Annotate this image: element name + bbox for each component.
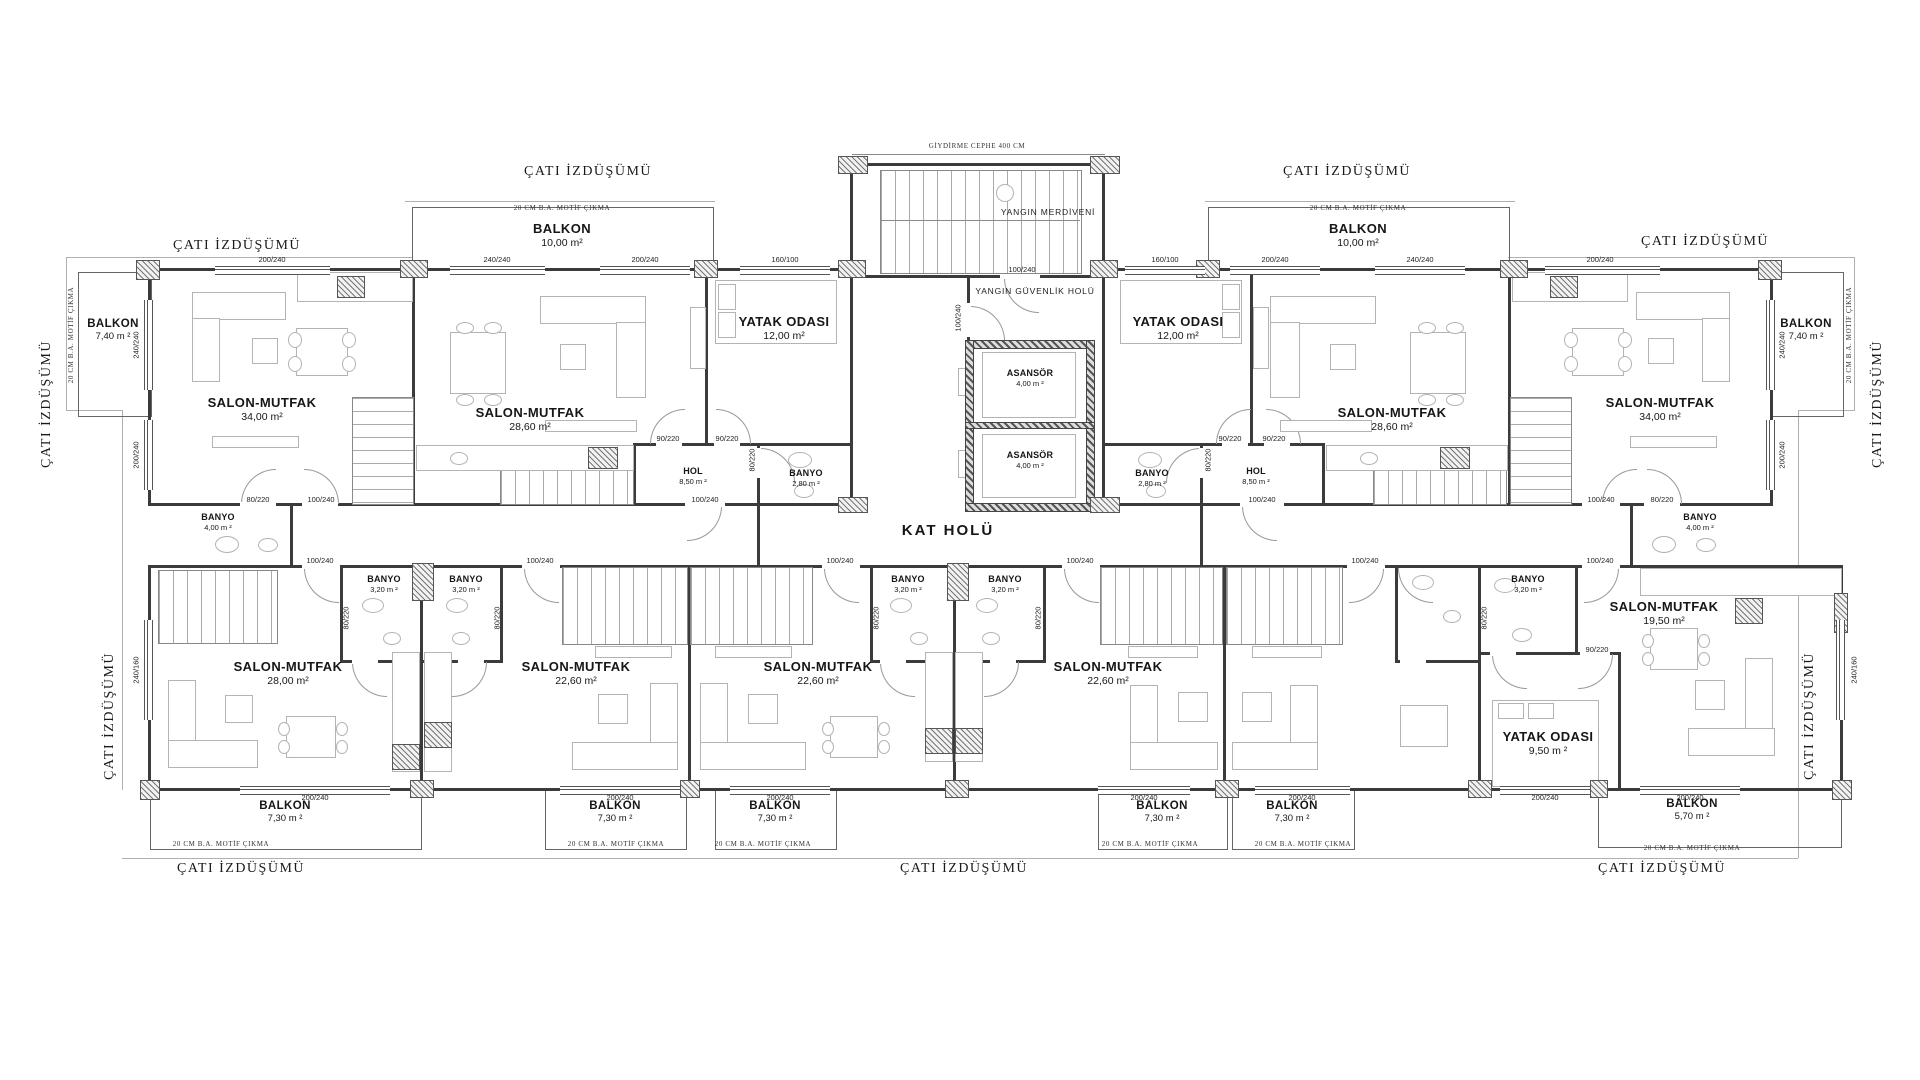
wall (850, 163, 1105, 166)
column (838, 497, 868, 513)
wall (1618, 652, 1621, 791)
window (600, 266, 690, 275)
sink (1443, 610, 1461, 623)
sink (982, 632, 1000, 645)
window (450, 266, 545, 275)
motif-note: 20 CM B.A. MOTİF ÇIKMA (1845, 287, 1853, 383)
wall (1575, 565, 1578, 655)
wardrobe (690, 307, 706, 369)
sofa (1636, 292, 1730, 320)
toilet (362, 598, 384, 613)
sink (383, 632, 401, 645)
door-dim: 100/240 (1066, 556, 1093, 565)
sofa (616, 322, 646, 398)
chair (878, 740, 890, 754)
sink (910, 632, 928, 645)
motif-note: 20 CM B.A. MOTİF ÇIKMA (67, 287, 75, 383)
motif-note: 20 CM B.A. MOTİF ÇIKMA (1644, 844, 1740, 852)
door-dim: 80/220 (1651, 495, 1674, 504)
door-dim: 80/220 (1480, 607, 1489, 630)
door-dim: 100/240 (1248, 495, 1275, 504)
column (1468, 780, 1492, 798)
roof-outline (1508, 257, 1854, 258)
chair (456, 394, 474, 406)
window-dim: 200/240 (1586, 255, 1613, 264)
sofa (192, 318, 220, 382)
chair (822, 740, 834, 754)
chair (1564, 356, 1578, 372)
room-label-hol: HOL8,50 m ² (1242, 466, 1270, 486)
chair (1698, 634, 1710, 648)
roof-projection-label: ÇATI İZDÜŞÜMÜ (1870, 340, 1886, 468)
stove (1440, 447, 1470, 469)
stair (1510, 397, 1572, 505)
door-opening (1400, 659, 1426, 664)
chair (336, 722, 348, 736)
door-opening (352, 659, 378, 664)
room-label-asansor: ASANSÖR4,00 m ² (1007, 368, 1053, 388)
roof-projection-label: ÇATI İZDÜŞÜMÜ (1641, 234, 1769, 250)
window-dim: 160/100 (771, 255, 798, 264)
roof-projection-label: ÇATI İZDÜŞÜMÜ (1283, 164, 1411, 180)
pillow (718, 284, 736, 310)
window-dim: 240/240 (483, 255, 510, 264)
room-label-salon-mutfak: SALON-MUTFAK28,00 m² (234, 660, 343, 688)
roof-projection-label: ÇATI İZDÜŞÜMÜ (900, 861, 1028, 877)
room-label-yatak-odasi: YATAK ODASI12,00 m² (739, 315, 830, 343)
column (945, 780, 969, 798)
roof-projection-label: ÇATI İZDÜŞÜMÜ (173, 238, 301, 254)
side-table (1178, 692, 1208, 722)
chair (342, 356, 356, 372)
window (215, 266, 330, 275)
fire-stair (880, 170, 1082, 274)
door-arc (824, 568, 859, 603)
column (1090, 260, 1118, 278)
motif-note: 20 CM B.A. MOTİF ÇIKMA (1255, 840, 1351, 848)
shaft-column (947, 563, 969, 601)
room-label-hol: HOL8,50 m ² (679, 466, 707, 486)
toilet (1412, 575, 1434, 590)
dining-table (1650, 628, 1698, 670)
sofa (1130, 742, 1218, 770)
side-table (225, 695, 253, 723)
stair (1226, 567, 1343, 645)
window (1230, 266, 1320, 275)
door-arc (1166, 448, 1201, 483)
room-label-salon-mutfak: SALON-MUTFAK19,50 m² (1610, 600, 1719, 628)
chair (1446, 322, 1464, 334)
roof-projection-label: ÇATI İZDÜŞÜMÜ (1598, 861, 1726, 877)
column (1090, 156, 1120, 174)
stair (1100, 567, 1223, 645)
dining-table (830, 716, 878, 758)
motif-note: 20 CM B.A. MOTİF ÇIKMA (173, 840, 269, 848)
stair (500, 469, 634, 505)
sofa (1232, 742, 1318, 770)
roof-outline (66, 257, 412, 258)
room-label-balkon: BALKON7,30 m ² (1136, 800, 1188, 825)
room-label-balkon: BALKON7,40 m ² (1780, 318, 1832, 343)
room-label-banyo: BANYO4,00 m ² (201, 512, 235, 532)
door-opening (880, 659, 906, 664)
toilet (1652, 536, 1676, 553)
room-label-salon-mutfak: SALON-MUTFAK34,00 m² (208, 396, 317, 424)
room-label-salon-mutfak: SALON-MUTFAK22,60 m² (1054, 660, 1163, 688)
door-dim: 100/240 (691, 495, 718, 504)
room-label-banyo: BANYO3,20 m ² (891, 574, 925, 594)
roof-projection-label: ÇATI İZDÜŞÜMÜ (102, 652, 118, 780)
kitchen-sink (450, 452, 468, 465)
sofa (1270, 322, 1300, 398)
door-arc (1584, 568, 1619, 603)
tv-bench (1630, 436, 1717, 448)
roof-outline (122, 858, 1798, 859)
column (838, 156, 868, 174)
toilet (976, 598, 998, 613)
side-table (598, 694, 628, 724)
dining-table (286, 716, 336, 758)
coffee-table (1648, 338, 1674, 364)
stair-landing (715, 646, 792, 658)
fire-safety-hall-label: YANGIN GÜVENLİK HOLÜ (975, 286, 1094, 296)
door-arc (304, 568, 339, 603)
window (144, 300, 153, 390)
wall (1395, 565, 1398, 663)
pillow (1222, 284, 1240, 310)
balcony (78, 272, 152, 417)
elevator-shaft-wall (965, 422, 1095, 429)
chair (456, 322, 474, 334)
sink (1512, 628, 1532, 642)
kitchen-sink (1360, 452, 1378, 465)
sink (452, 632, 470, 645)
pillow (1528, 703, 1554, 719)
window (144, 420, 153, 490)
corridor-label: KAT HOLÜ (902, 522, 994, 539)
room-label-banyo: BANYO3,20 m ² (449, 574, 483, 594)
chair (288, 332, 302, 348)
wall (1102, 163, 1105, 508)
door-arc (1349, 568, 1384, 603)
toilet (1138, 452, 1162, 468)
stove (955, 728, 983, 754)
roof-outline (1205, 201, 1515, 202)
window (144, 620, 153, 720)
door-opening (990, 659, 1016, 664)
stair-landing (1128, 646, 1198, 658)
room-label-yatak-odasi: YATAK ODASI12,00 m² (1133, 315, 1224, 343)
dimension-line (852, 154, 1105, 155)
stair-landing-line (880, 220, 1080, 221)
side-table (1242, 692, 1272, 722)
roof-outline (1854, 257, 1855, 411)
stove (337, 276, 365, 298)
room-label-banyo: BANYO4,00 m ² (1683, 512, 1717, 532)
wardrobe (1253, 307, 1269, 369)
wall (1630, 503, 1633, 568)
column (1590, 780, 1608, 798)
pillow (1222, 312, 1240, 338)
coffee-table (252, 338, 278, 364)
door-dim: 90/220 (1263, 434, 1286, 443)
window (1375, 266, 1465, 275)
window-dim: 200/240 (258, 255, 285, 264)
door-arc (970, 306, 1005, 341)
sink (258, 538, 278, 552)
side-table (748, 694, 778, 724)
sofa (700, 742, 806, 770)
room-label-banyo: BANYO2,80 m ² (1135, 468, 1169, 488)
wall (1478, 565, 1481, 791)
door-dim: 80/220 (342, 607, 351, 630)
door-dim: 90/220 (657, 434, 680, 443)
door-arc (1242, 506, 1277, 541)
door-arc (352, 662, 387, 697)
stair (158, 570, 278, 644)
window (740, 266, 830, 275)
motif-note: 20 CM B.A. MOTİF ÇIKMA (568, 840, 664, 848)
door-arc (524, 568, 559, 603)
room-label-balkon: BALKON10,00 m² (533, 222, 591, 250)
stove (588, 447, 618, 469)
column (1215, 780, 1239, 798)
sofa (192, 292, 286, 320)
stair-pole (996, 184, 1014, 202)
roof-outline (122, 410, 123, 790)
door-dim: 100/240 (306, 556, 333, 565)
dining-table (1410, 332, 1466, 394)
chair (1642, 634, 1654, 648)
toilet (215, 536, 239, 553)
window-dim: 200/240 (1261, 255, 1288, 264)
chair (342, 332, 356, 348)
stove (1735, 598, 1763, 624)
roof-projection-label: ÇATI İZDÜŞÜMÜ (39, 340, 55, 468)
room-label-salon-mutfak: SALON-MUTFAK22,60 m² (522, 660, 631, 688)
door-arc (687, 506, 722, 541)
dining-table (1572, 328, 1624, 376)
chair (1564, 332, 1578, 348)
window (1836, 620, 1845, 720)
room-label-banyo: BANYO2,80 m ² (789, 468, 823, 488)
room-label-salon-mutfak: SALON-MUTFAK22,60 m² (764, 660, 873, 688)
column (410, 780, 434, 798)
tv-bench (212, 436, 299, 448)
column (838, 260, 866, 278)
room-label-banyo: BANYO3,20 m ² (367, 574, 401, 594)
room-label-balkon: BALKON7,40 m ² (87, 318, 139, 343)
door-dim: 100/240 (1351, 556, 1378, 565)
sofa (572, 742, 678, 770)
door-dim: 80/220 (1034, 607, 1043, 630)
curtain-facade-note: GİYDİRME CEPHE 400 CM (929, 142, 1025, 150)
sofa (1270, 296, 1376, 324)
room-label-balkon: BALKON7,30 m ² (749, 800, 801, 825)
room-label-balkon: BALKON10,00 m² (1329, 222, 1387, 250)
door-dim: 80/220 (1204, 449, 1213, 472)
chair (278, 722, 290, 736)
door-dim: 100/240 (1008, 265, 1035, 274)
column (400, 260, 428, 278)
column (680, 780, 700, 798)
wall (850, 275, 1105, 278)
chair (822, 722, 834, 736)
stair-landing (1252, 646, 1322, 658)
stove (392, 744, 420, 770)
room-label-yatak-odasi: YATAK ODASI9,50 m ² (1503, 730, 1594, 758)
door-dim: 90/220 (1219, 434, 1242, 443)
door-arc (880, 662, 915, 697)
side-table (1695, 680, 1725, 710)
window-dim: 160/100 (1151, 255, 1178, 264)
coffee-table (1330, 344, 1356, 370)
door-dim: 100/240 (1586, 556, 1613, 565)
roof-projection-label: ÇATI İZDÜŞÜMÜ (524, 164, 652, 180)
room-label-balkon: BALKON7,30 m ² (589, 800, 641, 825)
roof-projection-label: ÇATI İZDÜŞÜMÜ (1802, 652, 1818, 780)
door-dim: 100/240 (1587, 495, 1614, 504)
motif-note: 20 CM B.A. MOTİF ÇIKMA (1102, 840, 1198, 848)
stair (1373, 469, 1507, 505)
stove (925, 728, 953, 754)
wall (290, 503, 293, 568)
dining-table (1400, 705, 1448, 747)
motif-note: 20 CM B.A. MOTİF ÇIKMA (715, 840, 811, 848)
toilet (446, 598, 468, 613)
sink (1696, 538, 1716, 552)
motif-note: 20 CM B.A. MOTİF ÇIKMA (514, 204, 610, 212)
dining-table (296, 328, 348, 376)
room-label-banyo: BANYO3,20 m ² (1511, 574, 1545, 594)
door-dim: 80/220 (872, 607, 881, 630)
door-opening (1000, 274, 1040, 279)
stair-landing (595, 646, 672, 658)
window-dim: 240/160 (132, 656, 141, 683)
stair (562, 567, 688, 645)
window-dim: 240/160 (1850, 656, 1859, 683)
toilet (788, 452, 812, 468)
room-label-balkon: BALKON5,70 m ² (1666, 798, 1718, 823)
door-dim: 80/220 (247, 495, 270, 504)
dining-table (450, 332, 506, 394)
sofa (540, 296, 646, 324)
door-opening (756, 448, 761, 478)
kitchen-counter (1640, 568, 1842, 596)
room-label-balkon: BALKON7,30 m ² (1266, 800, 1318, 825)
chair (288, 356, 302, 372)
chair (1418, 322, 1436, 334)
column (694, 260, 718, 278)
pillow (1498, 703, 1524, 719)
fire-stair-label: YANGIN MERDİVENİ (1001, 207, 1095, 217)
sofa (1688, 728, 1775, 756)
window (1545, 266, 1660, 275)
door-dim: 90/220 (1586, 645, 1609, 654)
shaft-column (412, 563, 434, 601)
room-label-balkon: BALKON7,30 m ² (259, 800, 311, 825)
window-dim: 200/240 (1531, 793, 1558, 802)
chair (1618, 332, 1632, 348)
toilet (890, 598, 912, 613)
column (1500, 260, 1528, 278)
wall (1043, 565, 1046, 663)
column (1758, 260, 1782, 280)
window (1766, 420, 1775, 490)
door-dim: 90/220 (716, 434, 739, 443)
door-dim: 100/240 (526, 556, 553, 565)
kitchen-counter (1326, 445, 1508, 471)
door-arc (452, 662, 487, 697)
room-label-banyo: BANYO3,20 m ² (988, 574, 1022, 594)
door-opening (966, 303, 971, 337)
door-dim: 100/240 (307, 495, 334, 504)
window (1766, 300, 1775, 390)
sofa (1702, 318, 1730, 382)
pillow (718, 312, 736, 338)
room-label-salon-mutfak: SALON-MUTFAK28,60 m² (1338, 406, 1447, 434)
coffee-table (560, 344, 586, 370)
motif-note: 20 CM B.A. MOTİF ÇIKMA (1310, 204, 1406, 212)
balcony (1598, 788, 1842, 848)
floor-plan: ÇATI İZDÜŞÜMÜ ÇATI İZDÜŞÜMÜ ÇATI İZDÜŞÜM… (0, 0, 1920, 1080)
column (1832, 780, 1852, 800)
chair (336, 740, 348, 754)
stair (352, 397, 414, 505)
room-label-asansor: ASANSÖR4,00 m ² (1007, 450, 1053, 470)
chair (278, 740, 290, 754)
column (140, 780, 160, 800)
door-opening (1490, 651, 1516, 656)
chair (1698, 652, 1710, 666)
room-label-salon-mutfak: SALON-MUTFAK28,60 m² (476, 406, 585, 434)
chair (1642, 652, 1654, 666)
chair (484, 322, 502, 334)
door-dim: 80/220 (748, 449, 757, 472)
door-dim: 80/220 (493, 607, 502, 630)
roof-outline (405, 201, 715, 202)
room-label-salon-mutfak: SALON-MUTFAK34,00 m² (1606, 396, 1715, 424)
chair (1446, 394, 1464, 406)
window (1125, 266, 1205, 275)
door-arc (1492, 654, 1527, 689)
sofa (168, 740, 258, 768)
chair (1618, 356, 1632, 372)
door-arc (1578, 654, 1613, 689)
wall (1322, 443, 1325, 505)
door-dim: 100/240 (954, 304, 963, 331)
wall (850, 163, 853, 508)
column (136, 260, 160, 280)
stove (1550, 276, 1578, 298)
roof-projection-label: ÇATI İZDÜŞÜMÜ (177, 861, 305, 877)
stove (424, 722, 452, 748)
window-dim: 240/240 (1406, 255, 1433, 264)
elevator-shaft-wall (965, 340, 1095, 349)
door-dim: 100/240 (826, 556, 853, 565)
door-opening (458, 659, 484, 664)
chair (878, 722, 890, 736)
door-arc (1064, 568, 1099, 603)
window-dim: 200/240 (631, 255, 658, 264)
stair (690, 567, 813, 645)
kitchen-counter (424, 652, 452, 772)
door-arc (984, 662, 1019, 697)
window-dim: 200/240 (132, 441, 141, 468)
column (1090, 497, 1120, 513)
elevator-shaft-wall (965, 503, 1095, 512)
window-dim: 200/240 (1778, 441, 1787, 468)
